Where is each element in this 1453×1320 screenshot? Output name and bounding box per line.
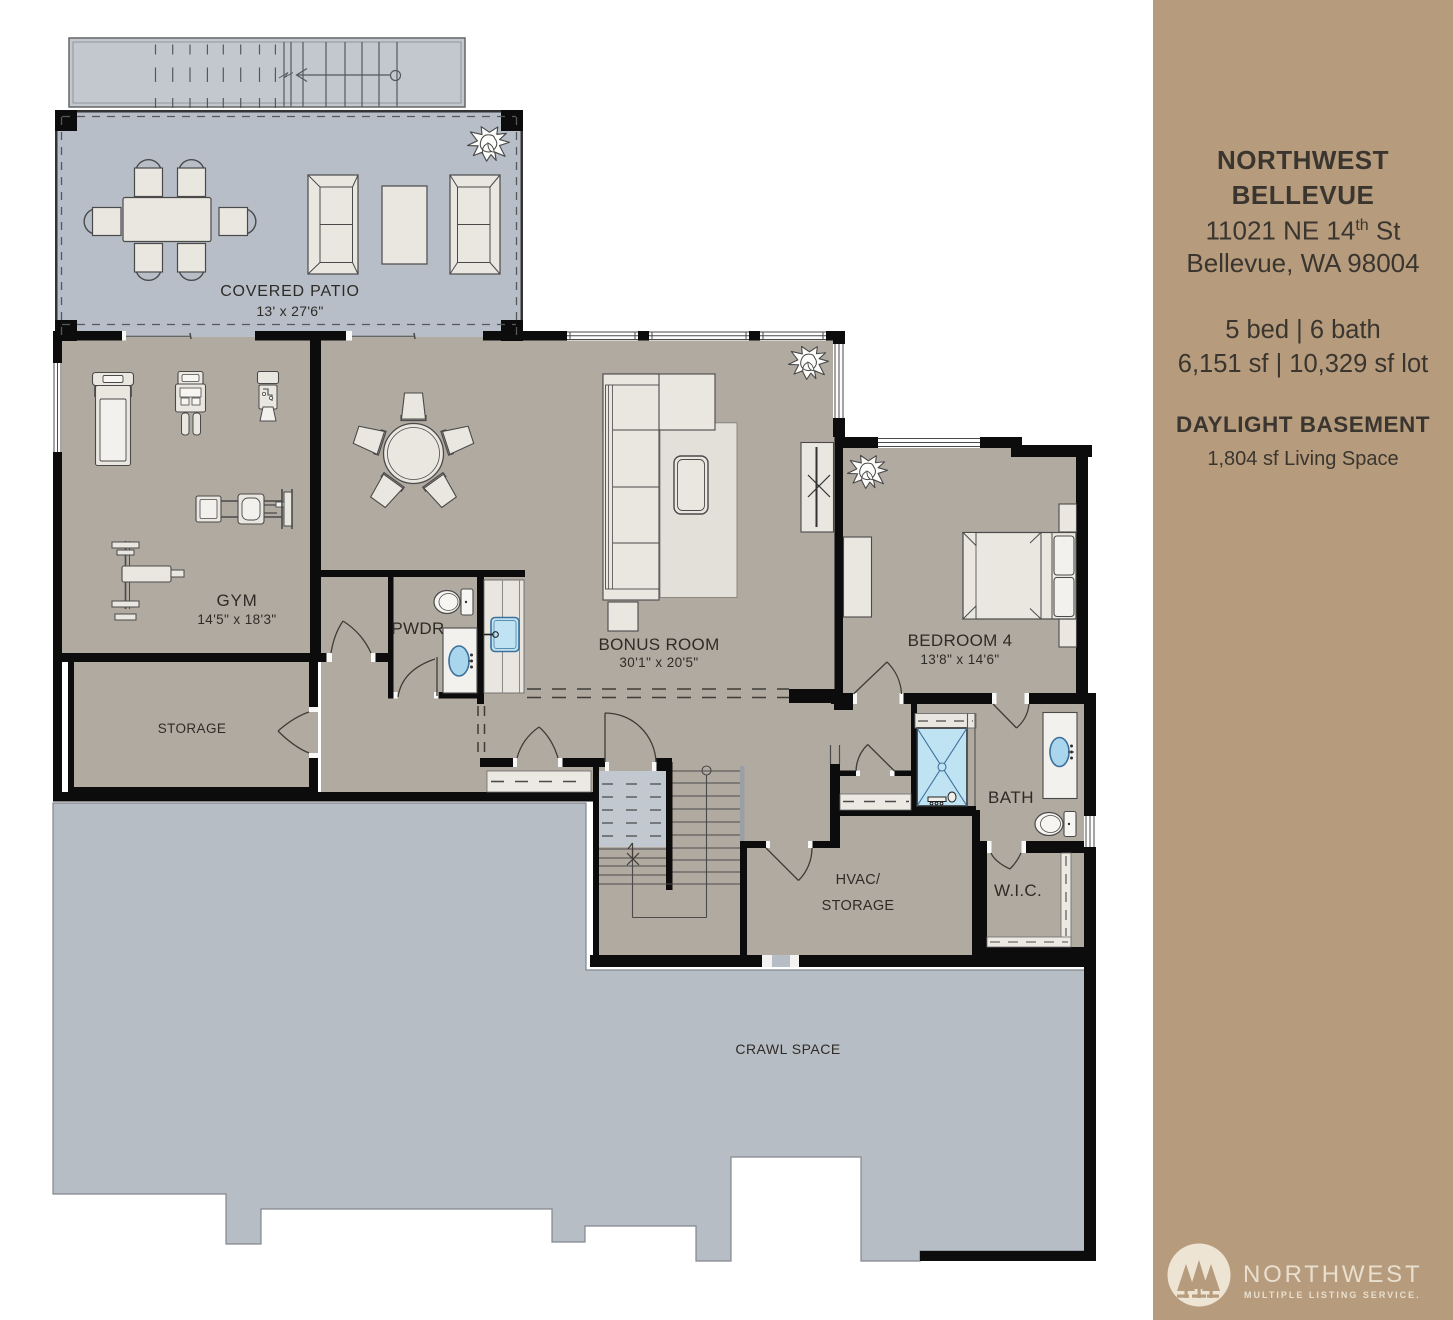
svg-text:13'8" x 14'6": 13'8" x 14'6" [920, 652, 999, 667]
svg-text:HVAC/: HVAC/ [836, 872, 881, 888]
svg-text:PWDR: PWDR [391, 619, 444, 638]
svg-text:BEDROOM 4: BEDROOM 4 [908, 631, 1013, 650]
svg-text:W.I.C.: W.I.C. [994, 881, 1042, 900]
svg-text:CRAWL SPACE: CRAWL SPACE [735, 1041, 840, 1057]
svg-text:STORAGE: STORAGE [158, 721, 227, 736]
svg-text:BONUS ROOM: BONUS ROOM [598, 635, 719, 654]
svg-text:14'5" x 18'3": 14'5" x 18'3" [197, 612, 276, 627]
svg-text:GYM: GYM [216, 591, 257, 610]
svg-text:STORAGE: STORAGE [822, 898, 895, 914]
svg-text:30'1" x 20'5": 30'1" x 20'5" [619, 655, 698, 670]
svg-text:MULTIPLE LISTING SERVICE.: MULTIPLE LISTING SERVICE. [1244, 1290, 1421, 1300]
svg-text:NORTHWEST: NORTHWEST [1243, 1261, 1422, 1288]
svg-text:BATH: BATH [988, 788, 1034, 807]
svg-text:COVERED PATIO: COVERED PATIO [220, 283, 360, 300]
svg-text:13' x 27'6": 13' x 27'6" [256, 303, 323, 319]
